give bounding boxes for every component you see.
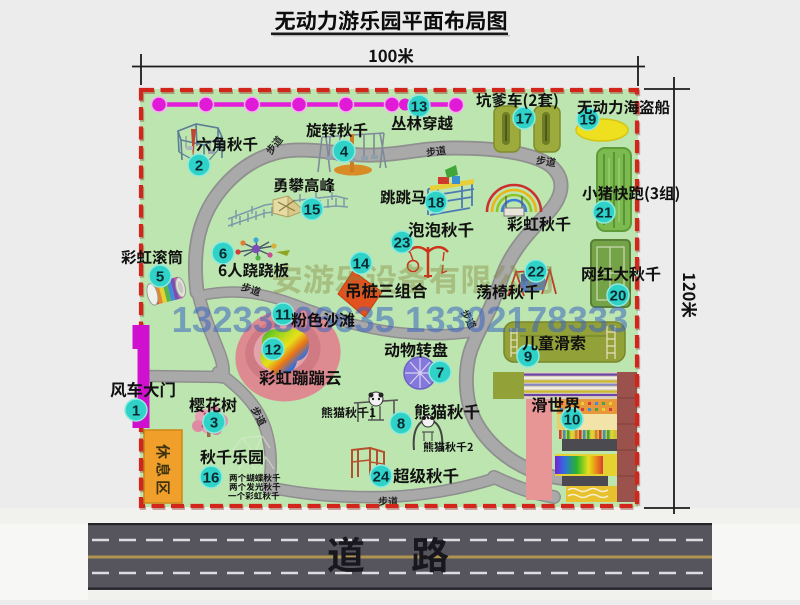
svg-text:14: 14 (353, 255, 370, 272)
svg-text:17: 17 (516, 110, 533, 127)
svg-text:20: 20 (610, 287, 627, 304)
svg-text:13233806635 13302178333: 13233806635 13302178333 (172, 299, 629, 340)
svg-text:6: 6 (219, 245, 227, 262)
svg-text:21: 21 (596, 204, 613, 221)
svg-text:24: 24 (373, 468, 390, 485)
svg-text:7: 7 (436, 364, 444, 381)
svg-text:5: 5 (156, 268, 164, 285)
svg-text:13: 13 (411, 98, 428, 115)
svg-text:22: 22 (528, 263, 545, 280)
svg-text:11: 11 (275, 306, 291, 323)
svg-text:4: 4 (340, 143, 349, 160)
svg-text:9: 9 (524, 348, 532, 365)
svg-text:10: 10 (564, 411, 581, 428)
svg-text:15: 15 (304, 201, 321, 218)
svg-text:2: 2 (195, 157, 203, 174)
svg-text:3: 3 (210, 414, 218, 431)
svg-text:8: 8 (397, 415, 405, 432)
svg-text:18: 18 (428, 194, 445, 211)
svg-text:1: 1 (132, 402, 140, 419)
svg-text:23: 23 (394, 234, 411, 251)
svg-text:12: 12 (265, 341, 282, 358)
svg-text:16: 16 (203, 469, 220, 486)
